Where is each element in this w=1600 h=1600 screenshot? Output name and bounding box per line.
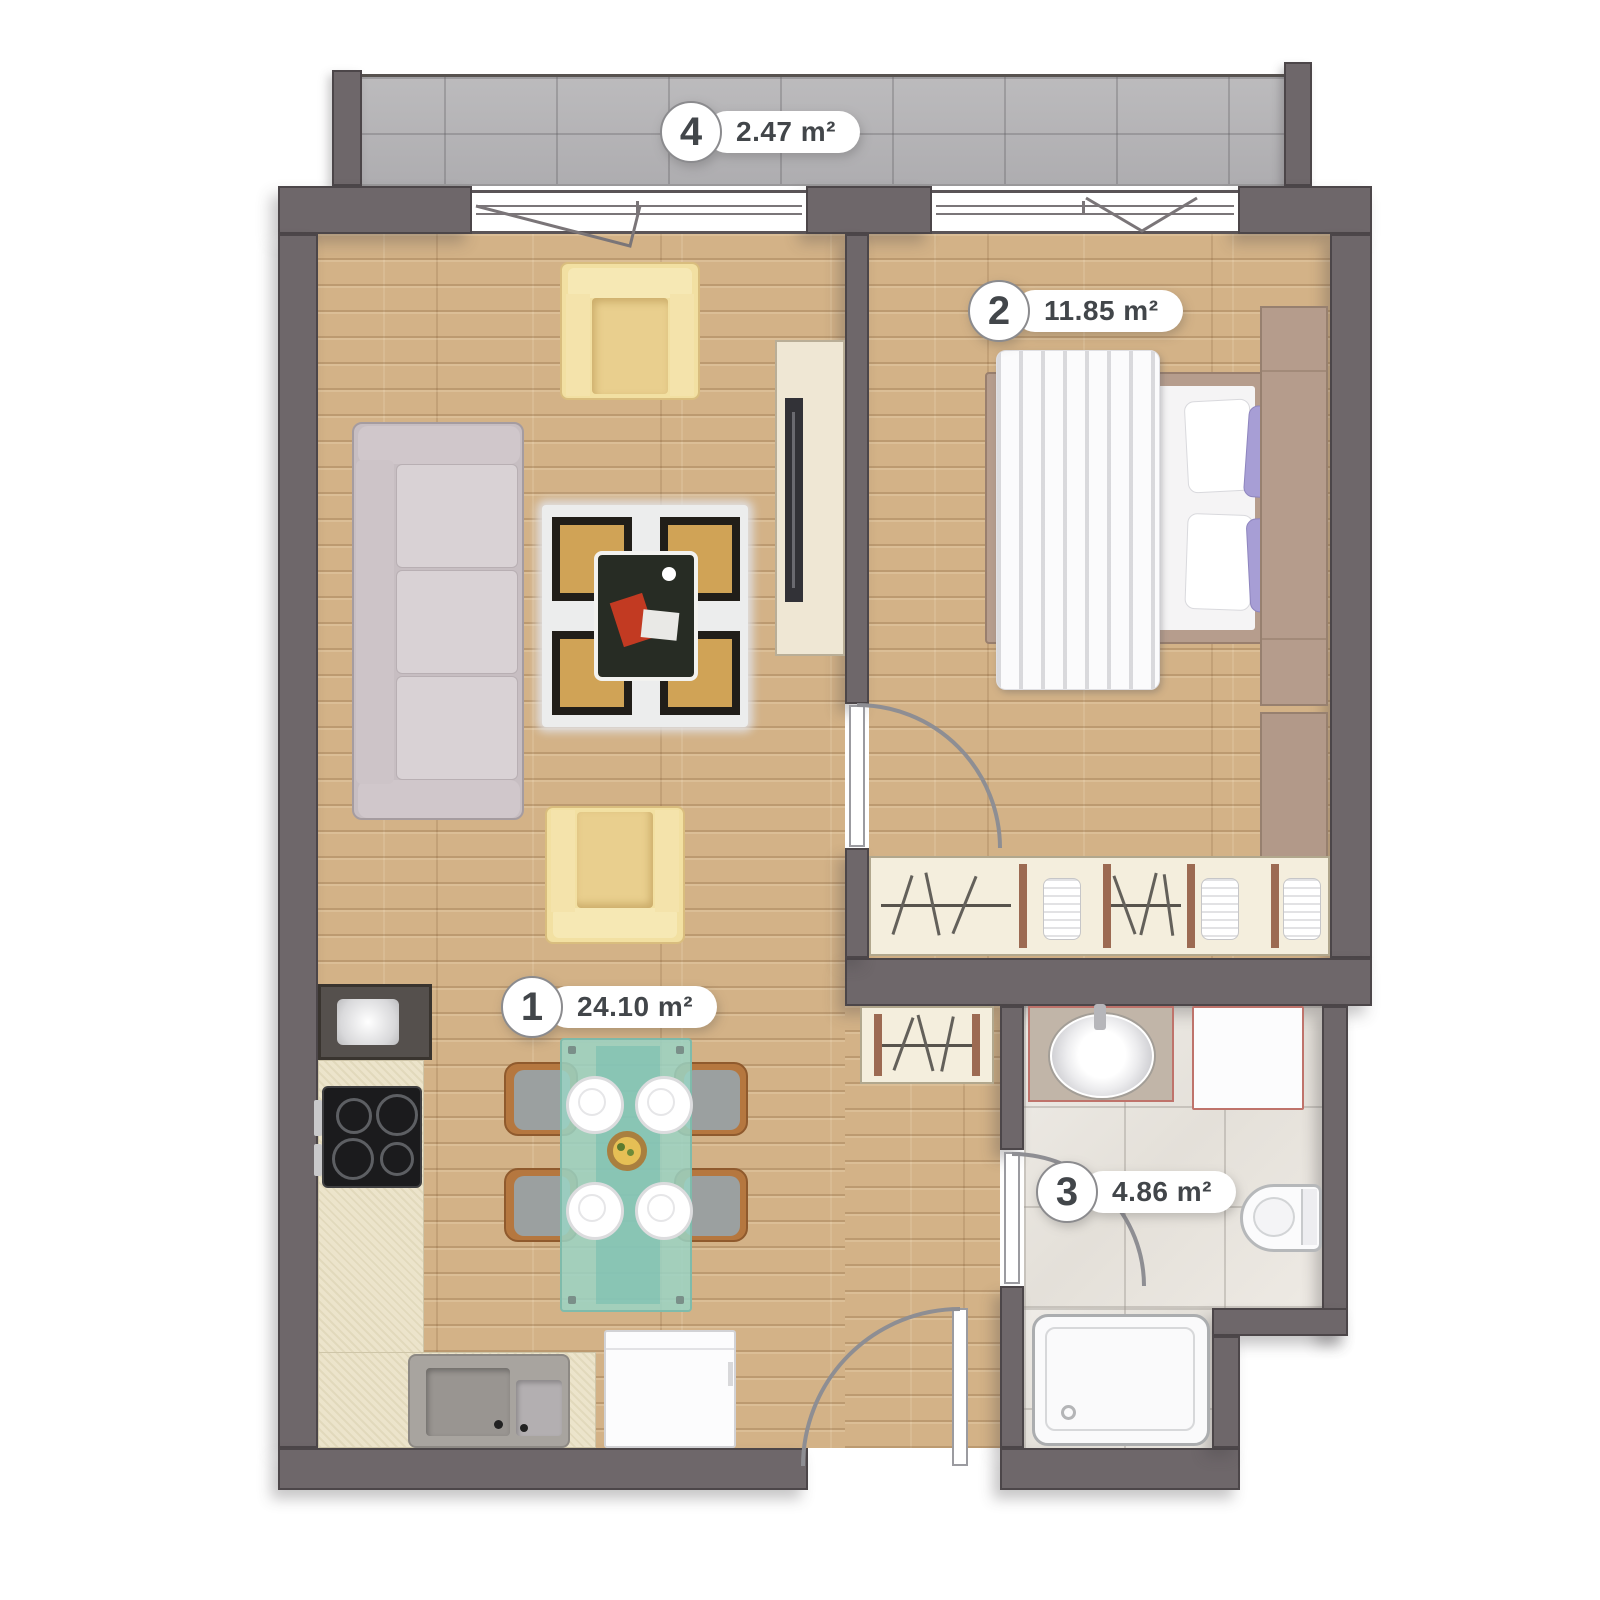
wardrobe-divider bbox=[1271, 864, 1279, 948]
plate bbox=[635, 1182, 693, 1240]
faucet bbox=[1094, 1004, 1106, 1030]
bathroom-door-leaf bbox=[1004, 1152, 1020, 1284]
room-label-living: 1 24.10 m² bbox=[501, 976, 717, 1038]
armchair-back bbox=[553, 908, 677, 938]
armchair-arm bbox=[670, 294, 694, 396]
burner bbox=[376, 1094, 418, 1136]
fridge-seam bbox=[606, 1348, 734, 1350]
table-bolt bbox=[568, 1296, 576, 1304]
armchair-seat bbox=[577, 812, 653, 908]
window-mullion bbox=[636, 201, 639, 215]
sofa-backrest bbox=[356, 460, 394, 784]
sink-drain bbox=[494, 1420, 503, 1429]
towel bbox=[1283, 878, 1321, 940]
room-number-badge: 4 bbox=[660, 101, 722, 163]
window-frame-line bbox=[476, 213, 802, 215]
living-room-balcony-window bbox=[472, 190, 806, 234]
bedroom-door-leaf bbox=[849, 705, 865, 847]
fridge-handle bbox=[728, 1362, 733, 1386]
dresser bbox=[1260, 712, 1328, 858]
salad-greens bbox=[627, 1149, 634, 1156]
plate-rim bbox=[647, 1194, 675, 1222]
bedroom-window bbox=[932, 190, 1238, 234]
toilet-bowl bbox=[1253, 1197, 1295, 1237]
shower-tray bbox=[1032, 1314, 1210, 1446]
burner bbox=[336, 1098, 372, 1134]
armchair bbox=[560, 262, 700, 400]
sofa-cushion bbox=[396, 570, 518, 674]
window-mullion bbox=[1082, 201, 1085, 215]
tv-screen-line bbox=[792, 412, 795, 588]
room-label-bathroom: 3 4.86 m² bbox=[1036, 1161, 1236, 1223]
bed-duvet bbox=[996, 350, 1160, 690]
plate bbox=[566, 1182, 624, 1240]
wall-bottom-left bbox=[278, 1448, 808, 1490]
headboard-seam bbox=[1262, 638, 1326, 640]
armchair-arm bbox=[566, 294, 590, 396]
sofa-cushion bbox=[396, 464, 518, 568]
room-number-badge: 2 bbox=[968, 280, 1030, 342]
wall-bath-step bbox=[1212, 1308, 1348, 1336]
burner bbox=[380, 1142, 414, 1176]
floor-plan: 1 24.10 m² 2 11.85 m² 3 4.86 m² 4 2.47 m… bbox=[0, 0, 1600, 1600]
sink-drain bbox=[520, 1424, 528, 1432]
salad-greens bbox=[617, 1143, 625, 1151]
table-bolt bbox=[568, 1046, 576, 1054]
wall-divider-upper bbox=[845, 234, 869, 704]
kitchen-sink bbox=[408, 1354, 570, 1448]
toilet-tank bbox=[1301, 1189, 1317, 1245]
balcony-railing-left bbox=[332, 70, 362, 186]
wall-top-left bbox=[278, 186, 472, 234]
cooktop bbox=[322, 1086, 422, 1188]
towel bbox=[1201, 878, 1239, 940]
wall-left bbox=[278, 234, 318, 1448]
window-frame-line bbox=[936, 205, 1234, 207]
tv bbox=[785, 398, 803, 602]
room-area-pill: 2.47 m² bbox=[706, 111, 860, 153]
room-label-balcony: 4 2.47 m² bbox=[660, 101, 860, 163]
hall-closet bbox=[860, 1006, 994, 1084]
plate-rim bbox=[578, 1194, 606, 1222]
table-bolt bbox=[676, 1046, 684, 1054]
balcony-railing-right bbox=[1284, 62, 1312, 186]
wall-divider-lower bbox=[845, 848, 869, 958]
armchair bbox=[545, 806, 685, 944]
salad-bowl bbox=[607, 1131, 647, 1171]
table-bolt bbox=[676, 1296, 684, 1304]
wall-top-right bbox=[1238, 186, 1372, 234]
wall-right bbox=[1330, 234, 1372, 958]
wardrobe-divider bbox=[1019, 864, 1027, 948]
rug bbox=[542, 505, 748, 727]
wall-top-pier bbox=[806, 186, 932, 234]
window-frame-line bbox=[936, 213, 1234, 215]
washing-machine bbox=[1192, 1006, 1304, 1110]
armchair-arm bbox=[655, 810, 679, 912]
bathroom-vanity bbox=[1028, 1006, 1174, 1102]
cooktop-handle bbox=[314, 1100, 322, 1136]
magazine bbox=[641, 609, 680, 641]
plate-rim bbox=[578, 1088, 606, 1116]
plate-rim bbox=[647, 1088, 675, 1116]
window-frame-line bbox=[476, 205, 802, 207]
hanger bbox=[917, 1015, 935, 1072]
oven-glass bbox=[337, 999, 399, 1045]
armchair-arm bbox=[551, 810, 575, 912]
wall-bath-right-upper bbox=[1322, 1006, 1348, 1336]
wardrobe-divider bbox=[1187, 864, 1195, 948]
entry-door-leaf bbox=[952, 1308, 968, 1466]
pillow bbox=[1184, 513, 1253, 611]
towel bbox=[1043, 878, 1081, 940]
cup bbox=[662, 567, 676, 581]
wall-bath-right-lower bbox=[1212, 1336, 1240, 1448]
wall-bath-left-lower bbox=[1000, 1286, 1024, 1448]
plate bbox=[635, 1076, 693, 1134]
headboard bbox=[1260, 306, 1328, 706]
wall-bedroom-bottom bbox=[845, 958, 1372, 1006]
wardrobe bbox=[869, 856, 1330, 956]
room-label-bedroom: 2 11.85 m² bbox=[968, 280, 1183, 342]
toilet bbox=[1240, 1184, 1322, 1252]
room-number-badge: 1 bbox=[501, 976, 563, 1038]
sofa-cushion bbox=[396, 676, 518, 780]
sofa-armrest bbox=[358, 426, 520, 464]
cooktop-handle bbox=[314, 1144, 322, 1176]
sofa-armrest bbox=[358, 780, 520, 818]
room-number-badge: 3 bbox=[1036, 1161, 1098, 1223]
wall-bath-left-upper bbox=[1000, 1006, 1024, 1150]
wardrobe-divider bbox=[1103, 864, 1111, 948]
wall-bottom-right bbox=[1000, 1448, 1240, 1490]
sofa bbox=[352, 422, 524, 820]
closet-rail bbox=[972, 1014, 980, 1076]
wall-oven bbox=[318, 984, 432, 1060]
room-area-pill: 24.10 m² bbox=[547, 986, 717, 1028]
armchair-seat bbox=[592, 298, 668, 394]
closet-rail bbox=[874, 1014, 882, 1076]
shower-drain bbox=[1061, 1405, 1076, 1420]
refrigerator bbox=[604, 1330, 736, 1448]
burner bbox=[332, 1138, 374, 1180]
tv-panel bbox=[775, 340, 845, 656]
plate bbox=[566, 1076, 624, 1134]
headboard-seam bbox=[1262, 370, 1326, 372]
coffee-table bbox=[598, 555, 694, 677]
room-area-pill: 4.86 m² bbox=[1082, 1171, 1236, 1213]
room-area-pill: 11.85 m² bbox=[1014, 290, 1183, 332]
